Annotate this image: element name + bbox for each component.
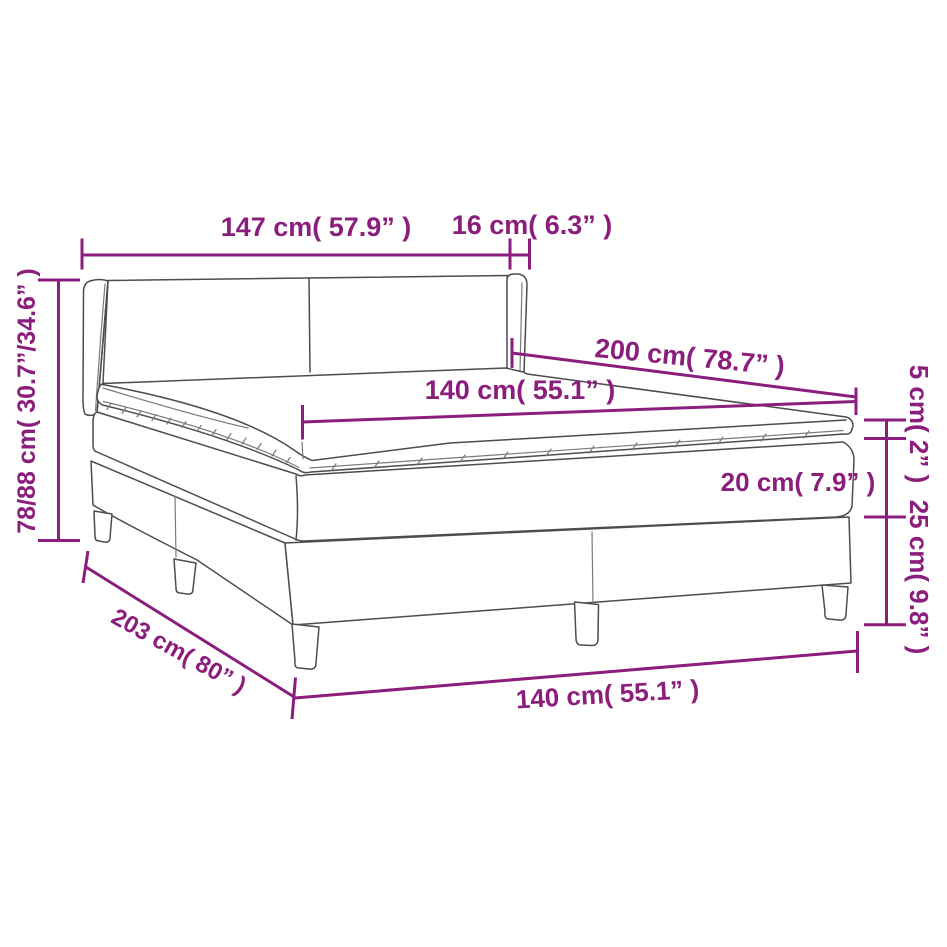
svg-text:25 cm( 9.8” ): 25 cm( 9.8” ) — [904, 500, 934, 655]
svg-text:140 cm( 55.1” ): 140 cm( 55.1” ) — [425, 375, 616, 405]
svg-text:147 cm( 57.9” ): 147 cm( 57.9” ) — [221, 212, 412, 242]
svg-text:203 cm( 80” ): 203 cm( 80” ) — [107, 603, 251, 699]
svg-text:200 cm( 78.7” ): 200 cm( 78.7” ) — [594, 333, 787, 381]
svg-text:140 cm( 55.1” ): 140 cm( 55.1” ) — [515, 674, 700, 715]
svg-text:5 cm( 2” ): 5 cm( 2” ) — [904, 365, 934, 484]
svg-text:16 cm( 6.3” ): 16 cm( 6.3” ) — [452, 210, 613, 240]
svg-text:78/88 cm( 30.7”/34.6” ): 78/88 cm( 30.7”/34.6” ) — [13, 268, 41, 533]
svg-text:20 cm( 7.9” ): 20 cm( 7.9” ) — [721, 467, 876, 497]
